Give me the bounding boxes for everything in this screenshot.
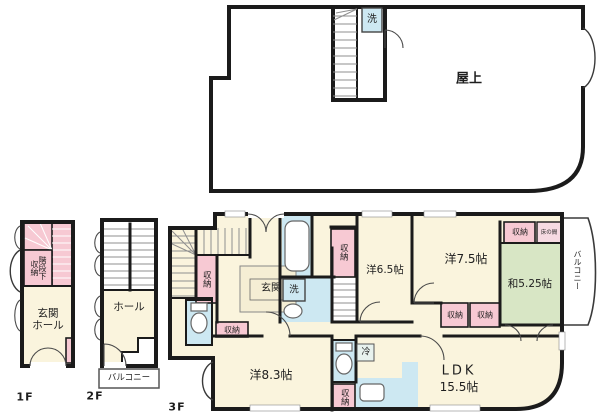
f1-under-stair-storage-label: 階段下収納: [30, 255, 46, 281]
f2-hall-label: ホール: [113, 301, 145, 313]
f3-closet-f-label: 収納: [512, 227, 528, 236]
f1-entrance-hall-label: 玄関 ホール: [32, 308, 64, 333]
floor1-plan: [10, 222, 73, 370]
floor3-plan: [170, 210, 596, 411]
floorplan-canvas: 屋上 洗 階段下収納 玄関 ホール 1F ホール バルコニー 2F 3F 収納 …: [0, 0, 600, 418]
f3-closet-c-label: 収納: [224, 325, 240, 334]
f2-balcony-label: バルコニー: [108, 373, 150, 383]
f2-floor-label: 2F: [86, 391, 103, 404]
f3-washer-label: 洗: [289, 284, 299, 295]
roof-label: 屋上: [456, 71, 482, 86]
f3-room-w83-label: 洋8.3帖: [249, 368, 292, 382]
f3-room-j525-label: 和5.25帖: [508, 278, 552, 290]
f3-closet-d-label: 収納: [340, 389, 349, 406]
washbasin-icon: [284, 304, 302, 318]
f1-bay-window: [10, 250, 20, 292]
f3-ldk-label: LDK: [442, 363, 477, 378]
f3-closet-a-label: 収納: [202, 271, 211, 288]
kitchen-sink-icon: [360, 384, 384, 401]
bathtub-icon: [285, 221, 309, 271]
toilet-icon-2: [336, 343, 352, 374]
toilet-icon: [191, 303, 207, 333]
f3-closet-b-label: 収納: [339, 244, 348, 261]
f3-room-w75-label: 洋7.5帖: [444, 252, 487, 266]
roof-washer-label: 洗: [367, 14, 377, 26]
f3-entrance-label: 玄関: [261, 283, 281, 295]
f3-fridge-label: 冷: [361, 348, 370, 359]
f3-closet-e1-label: 収納: [447, 310, 463, 319]
floorplan-drawing: [0, 0, 600, 418]
f1-floor-label: 1F: [16, 392, 33, 405]
roof-plan: [211, 7, 595, 191]
f3-ldk-size-label: 15.5帖: [440, 380, 479, 394]
f3-floor-label: 3F: [168, 402, 185, 415]
f3-closet-e2-label: 収納: [477, 310, 493, 319]
f3-tokonoma-label: 床の間: [541, 230, 558, 236]
f3-room-w65-label: 洋6.5帖: [366, 264, 404, 276]
f3-balcony-label: バルコニー: [573, 250, 581, 290]
